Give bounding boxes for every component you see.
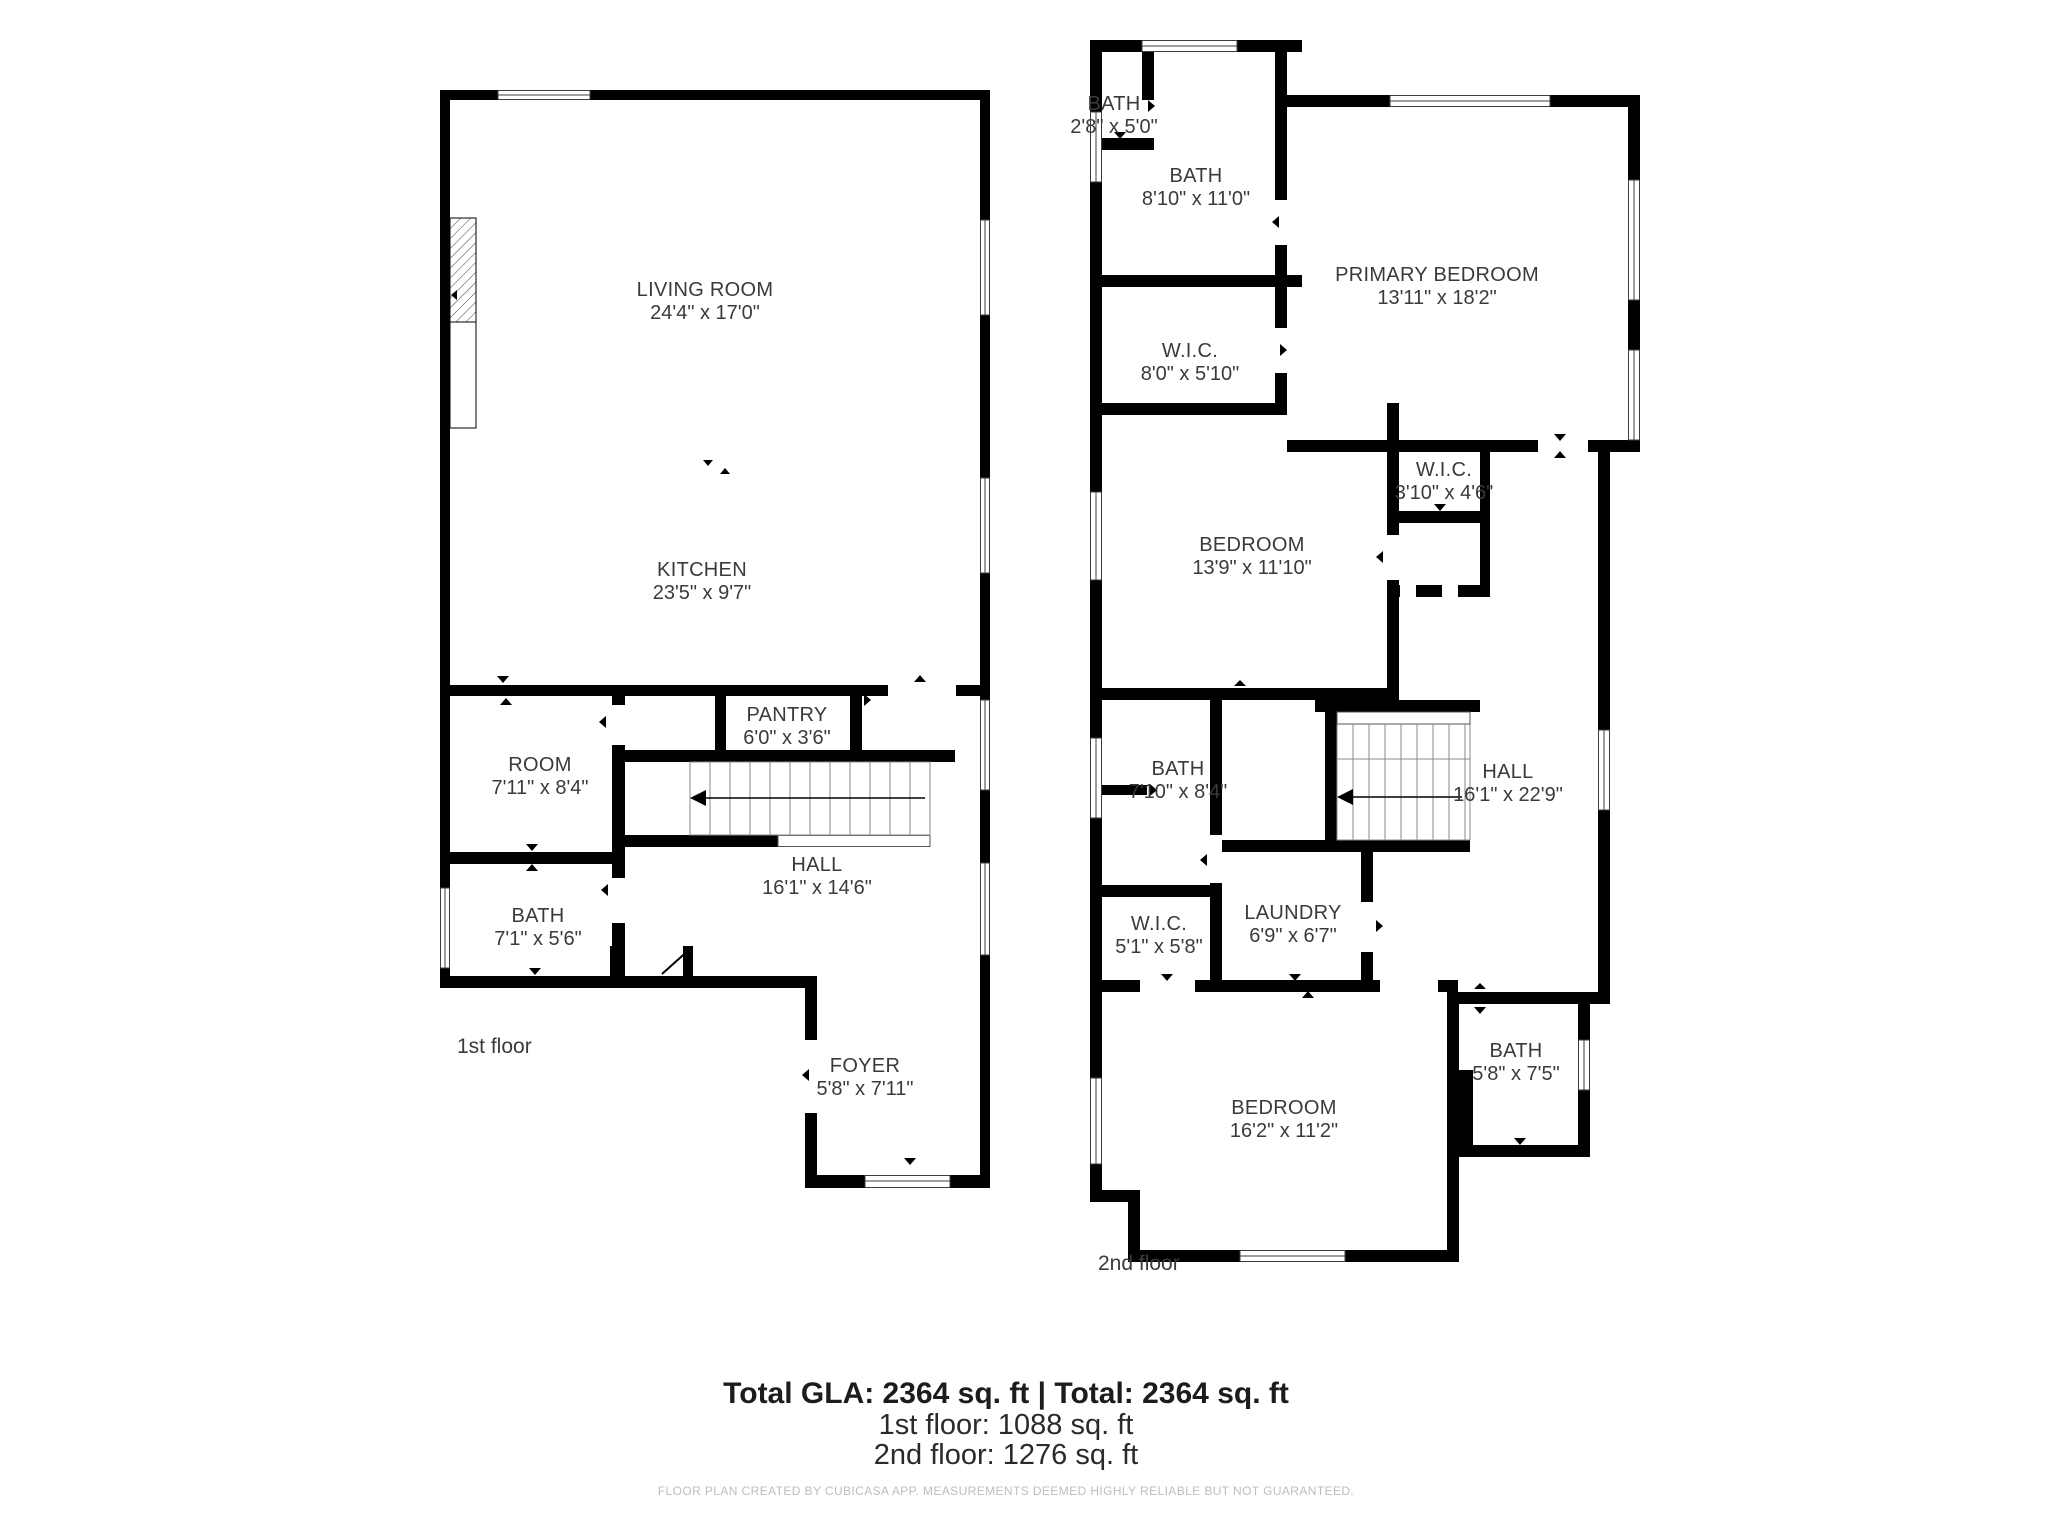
room-name: LAUNDRY: [1244, 902, 1341, 925]
second-floor-walls-drawing: [1090, 40, 1650, 1275]
room-dimensions: 23'5" x 9'7": [653, 582, 752, 605]
stairs: [690, 762, 930, 835]
first-floor-plan: LIVING ROOM 24'4" x 17'0" KITCHEN 23'5" …: [440, 90, 990, 1200]
room-label-bath-main: BATH 8'10" x 11'0": [1142, 165, 1250, 211]
fireplace: [450, 218, 476, 428]
outer-walls: [440, 90, 990, 1188]
room-name: LIVING ROOM: [637, 279, 774, 302]
room-name: BATH: [1070, 93, 1157, 116]
room-dimensions: 6'9" x 6'7": [1244, 925, 1341, 948]
room-label-wic-2: W.I.C. 3'10" x 4'6": [1395, 459, 1494, 505]
room-dimensions: 5'8" x 7'11": [816, 1078, 913, 1101]
room-dimensions: 6'0" x 3'6": [743, 727, 830, 750]
room-label-room: ROOM 7'11" x 8'4": [491, 754, 588, 800]
first-floor-walls-drawing: [440, 90, 990, 1200]
room-dimensions: 16'2" x 11'2": [1230, 1120, 1338, 1143]
room-label-foyer: FOYER 5'8" x 7'11": [816, 1055, 913, 1101]
floor-plan-page: LIVING ROOM 24'4" x 17'0" KITCHEN 23'5" …: [0, 0, 2048, 1536]
area-summary: Total GLA: 2364 sq. ft | Total: 2364 sq.…: [0, 1378, 2012, 1470]
room-dimensions: 13'11" x 18'2": [1335, 287, 1539, 310]
room-dimensions: 16'1" x 14'6": [762, 877, 872, 900]
room-label-pantry: PANTRY 6'0" x 3'6": [743, 704, 830, 750]
room-name: W.I.C.: [1115, 913, 1202, 936]
room-name: BATH: [1472, 1040, 1559, 1063]
room-label-primary-bedroom: PRIMARY BEDROOM 13'11" x 18'2": [1335, 264, 1539, 310]
room-label-bath-middle: BATH 7'10" x 8'4": [1129, 758, 1228, 804]
room-label-living-room: LIVING ROOM 24'4" x 17'0": [637, 279, 774, 325]
room-label-wic-3: W.I.C. 5'1" x 5'8": [1115, 913, 1202, 959]
room-name: BATH: [494, 905, 581, 928]
windows: [441, 91, 990, 1188]
room-label-bedroom-middle: BEDROOM 13'9" x 11'10": [1192, 534, 1311, 580]
room-label-laundry: LAUNDRY 6'9" x 6'7": [1244, 902, 1341, 948]
second-floor-plan: BATH 2'8" x 5'0" BATH 8'10" x 11'0" PRIM…: [1090, 40, 1650, 1275]
first-floor-tag: 1st floor: [457, 1035, 532, 1059]
total-gla-line: Total GLA: 2364 sq. ft | Total: 2364 sq.…: [0, 1378, 2012, 1410]
room-label-wic-1: W.I.C. 8'0" x 5'10": [1141, 340, 1240, 386]
second-floor-tag: 2nd floor: [1098, 1252, 1180, 1276]
room-name: ROOM: [491, 754, 588, 777]
room-name: HALL: [762, 854, 872, 877]
room-name: W.I.C.: [1395, 459, 1494, 482]
room-dimensions: 7'10" x 8'4": [1129, 781, 1228, 804]
second-floor-area-line: 2nd floor: 1276 sq. ft: [0, 1440, 2012, 1470]
stairs: [1337, 712, 1470, 840]
room-label-hall-2: HALL 16'1" x 22'9": [1453, 761, 1563, 807]
room-dimensions: 8'0" x 5'10": [1141, 363, 1240, 386]
room-name: HALL: [1453, 761, 1563, 784]
room-name: KITCHEN: [653, 559, 752, 582]
room-label-bath-1: BATH 7'1" x 5'6": [494, 905, 581, 951]
room-label-bath-bottom: BATH 5'8" x 7'5": [1472, 1040, 1559, 1086]
room-label-hall-1: HALL 16'1" x 14'6": [762, 854, 872, 900]
room-name: BEDROOM: [1230, 1097, 1338, 1120]
room-label-kitchen: KITCHEN 23'5" x 9'7": [653, 559, 752, 605]
room-dimensions: 24'4" x 17'0": [637, 302, 774, 325]
room-dimensions: 16'1" x 22'9": [1453, 784, 1563, 807]
room-dimensions: 5'8" x 7'5": [1472, 1063, 1559, 1086]
room-name: W.I.C.: [1141, 340, 1240, 363]
room-dimensions: 7'11" x 8'4": [491, 777, 588, 800]
room-name: FOYER: [816, 1055, 913, 1078]
room-name: PANTRY: [743, 704, 830, 727]
room-name: PRIMARY BEDROOM: [1335, 264, 1539, 287]
room-dimensions: 3'10" x 4'6": [1395, 482, 1494, 505]
room-dimensions: 8'10" x 11'0": [1142, 188, 1250, 211]
room-dimensions: 2'8" x 5'0": [1070, 116, 1157, 139]
room-dimensions: 5'1" x 5'8": [1115, 936, 1202, 959]
room-dimensions: 7'1" x 5'6": [494, 928, 581, 951]
disclaimer-text: FLOOR PLAN CREATED BY CUBICASA APP. MEAS…: [0, 1484, 2012, 1498]
room-name: BATH: [1142, 165, 1250, 188]
room-name: BEDROOM: [1192, 534, 1311, 557]
room-dimensions: 13'9" x 11'10": [1192, 557, 1311, 580]
room-label-bedroom-bottom: BEDROOM 16'2" x 11'2": [1230, 1097, 1338, 1143]
first-floor-area-line: 1st floor: 1088 sq. ft: [0, 1410, 2012, 1440]
room-name: BATH: [1129, 758, 1228, 781]
room-label-bath-small: BATH 2'8" x 5'0": [1070, 93, 1157, 139]
